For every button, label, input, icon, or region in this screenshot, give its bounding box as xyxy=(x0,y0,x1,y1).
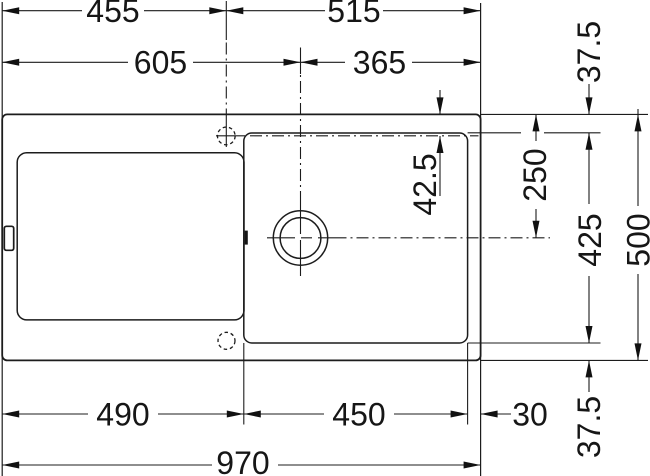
svg-text:455: 455 xyxy=(86,0,139,29)
svg-text:42.5: 42.5 xyxy=(407,153,443,215)
svg-text:605: 605 xyxy=(134,45,187,81)
svg-text:490: 490 xyxy=(96,396,149,432)
svg-text:450: 450 xyxy=(332,396,385,432)
svg-text:515: 515 xyxy=(327,0,380,29)
svg-text:425: 425 xyxy=(572,213,608,266)
svg-text:37.5: 37.5 xyxy=(571,21,607,83)
svg-text:30: 30 xyxy=(512,396,548,432)
svg-text:250: 250 xyxy=(517,148,553,201)
svg-text:970: 970 xyxy=(216,445,269,476)
svg-text:365: 365 xyxy=(353,45,406,81)
svg-text:37.5: 37.5 xyxy=(571,396,607,458)
svg-text:500: 500 xyxy=(620,213,650,266)
